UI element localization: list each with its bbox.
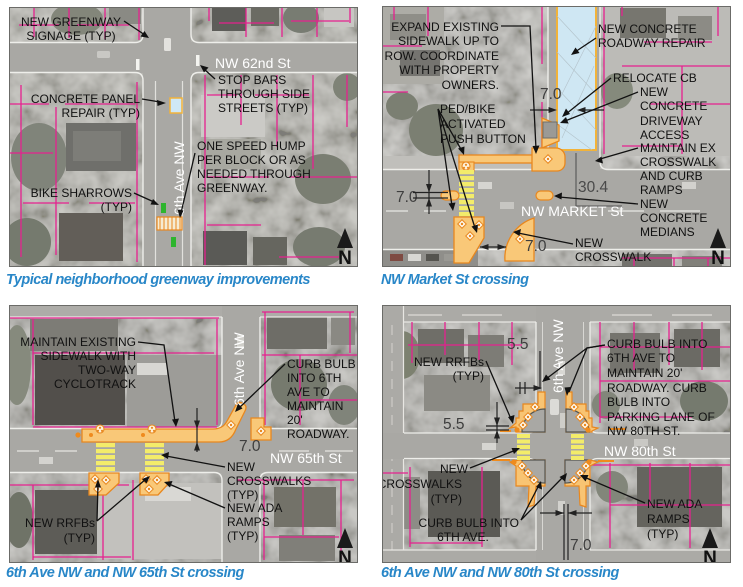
- svg-text:NW 80TH ST.: NW 80TH ST.: [607, 424, 680, 438]
- svg-text:AVE TO: AVE TO: [287, 385, 330, 399]
- svg-text:5.5: 5.5: [507, 336, 529, 353]
- svg-text:NEW RRFBs: NEW RRFBs: [25, 516, 95, 530]
- svg-text:6TH AVE.: 6TH AVE.: [437, 530, 489, 544]
- svg-text:30.4: 30.4: [578, 179, 609, 196]
- svg-text:STOP BARS: STOP BARS: [218, 73, 286, 87]
- svg-text:NW 80th St: NW 80th St: [604, 443, 676, 459]
- svg-text:MAINTAIN EX: MAINTAIN EX: [640, 141, 716, 155]
- svg-text:OWNERS.: OWNERS.: [442, 78, 499, 92]
- svg-text:CROSSWALKS: CROSSWALKS: [227, 474, 311, 488]
- svg-text:NEW ADA: NEW ADA: [647, 497, 702, 511]
- svg-text:NW MARKET St: NW MARKET St: [521, 203, 624, 219]
- svg-text:MAINTAIN: MAINTAIN: [287, 399, 343, 413]
- svg-text:CURB BULB: CURB BULB: [287, 357, 356, 371]
- svg-text:6TH AVE TO: 6TH AVE TO: [607, 351, 675, 365]
- svg-text:CYCLOTRACK: CYCLOTRACK: [54, 377, 136, 391]
- svg-text:REPAIR (TYP): REPAIR (TYP): [62, 106, 140, 120]
- svg-text:CROSSWALK: CROSSWALK: [640, 155, 716, 169]
- svg-text:(TYP): (TYP): [227, 529, 258, 543]
- svg-text:NEW: NEW: [640, 85, 669, 99]
- svg-text:NEW: NEW: [575, 236, 604, 250]
- svg-text:(TYP): (TYP): [431, 492, 462, 506]
- svg-text:NEW CONCRETE: NEW CONCRETE: [598, 22, 697, 36]
- svg-text:6th Ave NW: 6th Ave NW: [231, 332, 247, 406]
- svg-text:ROADWAY REPAIR: ROADWAY REPAIR: [598, 36, 706, 50]
- svg-text:5.5: 5.5: [443, 416, 465, 433]
- svg-text:ROADWAY.: ROADWAY.: [287, 427, 349, 441]
- svg-text:CROSSWALKS: CROSSWALKS: [382, 477, 462, 491]
- svg-text:WITH PROPERTY: WITH PROPERTY: [399, 63, 499, 77]
- svg-text:6th Ave NW: 6th Ave NW: [171, 141, 187, 215]
- svg-text:THROUGH SIDE: THROUGH SIDE: [218, 87, 310, 101]
- svg-text:ROADWAY. CURB: ROADWAY. CURB: [607, 381, 707, 395]
- svg-text:NEW ADA: NEW ADA: [227, 501, 282, 515]
- svg-text:RELOCATE CB: RELOCATE CB: [613, 71, 697, 85]
- svg-text:NW 62nd St: NW 62nd St: [215, 55, 291, 71]
- svg-text:7.0: 7.0: [525, 238, 547, 255]
- svg-text:SIGNAGE (TYP): SIGNAGE (TYP): [26, 29, 115, 43]
- svg-text:CONCRETE: CONCRETE: [640, 99, 707, 113]
- svg-text:GREENWAY.: GREENWAY.: [197, 181, 267, 195]
- svg-text:STREETS (TYP): STREETS (TYP): [218, 101, 308, 115]
- svg-text:NEW GREENWAY: NEW GREENWAY: [21, 15, 121, 29]
- svg-text:7.0: 7.0: [239, 438, 261, 455]
- svg-text:RAMPS: RAMPS: [647, 512, 690, 526]
- svg-text:PER BLOCK OR AS: PER BLOCK OR AS: [197, 153, 306, 167]
- svg-text:NEW: NEW: [440, 462, 469, 476]
- svg-text:PED/BIKE: PED/BIKE: [440, 102, 495, 116]
- svg-text:7.0: 7.0: [540, 86, 562, 103]
- svg-text:6th Ave NW: 6th Ave NW: [550, 319, 566, 393]
- svg-text:SIDEWALK WITH: SIDEWALK WITH: [40, 349, 136, 363]
- svg-text:NW 65th St: NW 65th St: [270, 450, 342, 466]
- svg-text:EXPAND EXISTING: EXPAND EXISTING: [391, 20, 499, 34]
- svg-text:BULB INTO: BULB INTO: [607, 395, 670, 409]
- svg-text:MEDIANS: MEDIANS: [640, 225, 695, 239]
- svg-text:NEW RRFBs: NEW RRFBs: [414, 355, 484, 369]
- svg-text:(TYP): (TYP): [227, 488, 258, 502]
- svg-text:ACCESS: ACCESS: [640, 128, 689, 142]
- svg-text:NEEDED THROUGH: NEEDED THROUGH: [197, 167, 311, 181]
- svg-text:MAINTAIN EXISTING: MAINTAIN EXISTING: [20, 335, 136, 349]
- svg-text:(TYP): (TYP): [64, 531, 95, 545]
- svg-text:7.0: 7.0: [570, 537, 592, 554]
- svg-text:MAINTAIN 20': MAINTAIN 20': [607, 366, 682, 380]
- svg-text:RAMPS: RAMPS: [640, 183, 683, 197]
- svg-text:NEW: NEW: [640, 197, 669, 211]
- svg-text:(TYP): (TYP): [101, 200, 132, 214]
- svg-text:ROW. COORDINATE: ROW. COORDINATE: [385, 49, 499, 63]
- svg-text:RAMPS: RAMPS: [227, 515, 270, 529]
- svg-text:ONE SPEED HUMP: ONE SPEED HUMP: [197, 139, 306, 153]
- svg-text:CURB BULB INTO: CURB BULB INTO: [607, 337, 707, 351]
- svg-text:SIDEWALK UP TO: SIDEWALK UP TO: [398, 34, 499, 48]
- svg-text:(TYP): (TYP): [647, 527, 678, 541]
- svg-text:AND CURB: AND CURB: [640, 169, 703, 183]
- svg-text:TWO-WAY: TWO-WAY: [78, 363, 136, 377]
- svg-text:PARKING LANE OF: PARKING LANE OF: [607, 410, 715, 424]
- svg-text:CONCRETE PANEL: CONCRETE PANEL: [31, 92, 140, 106]
- svg-text:CURB BULB INTO: CURB BULB INTO: [419, 516, 519, 530]
- svg-text:BIKE SHARROWS: BIKE SHARROWS: [31, 186, 132, 200]
- svg-text:DRIVEWAY: DRIVEWAY: [640, 114, 703, 128]
- svg-text:CONCRETE: CONCRETE: [640, 211, 707, 225]
- svg-text:(TYP): (TYP): [453, 369, 484, 383]
- svg-text:CROSSWALK: CROSSWALK: [575, 250, 651, 264]
- svg-text:INTO 6TH: INTO 6TH: [287, 371, 341, 385]
- svg-text:NEW: NEW: [227, 460, 256, 474]
- svg-text:20': 20': [287, 413, 303, 427]
